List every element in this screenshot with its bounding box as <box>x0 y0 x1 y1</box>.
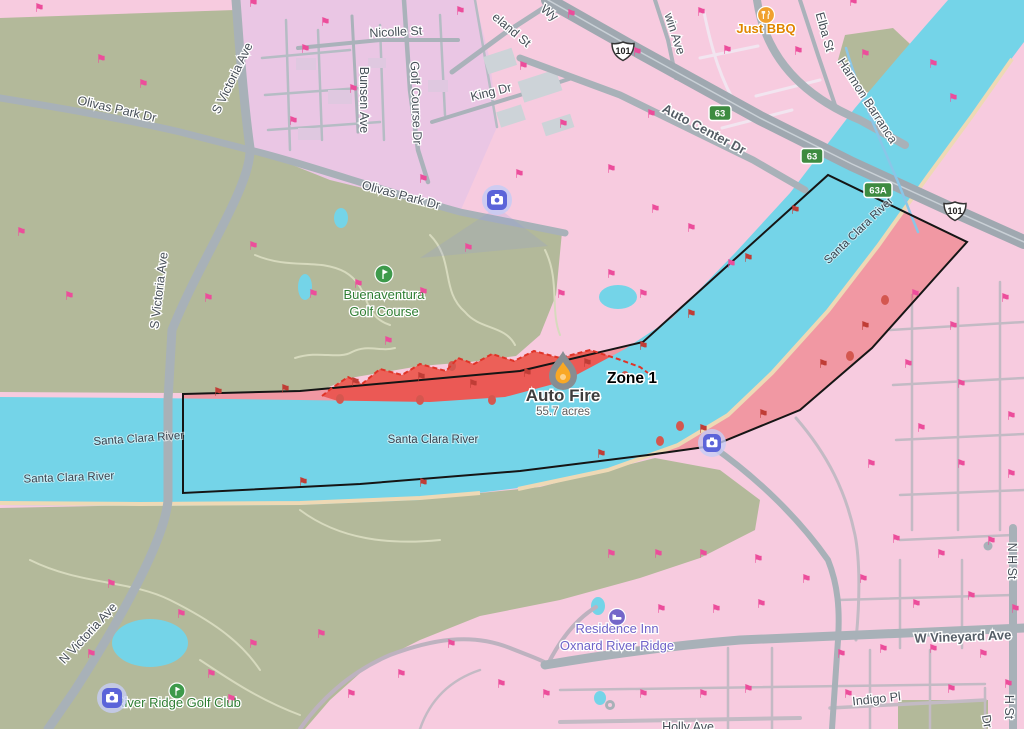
road-label-h-st: H St <box>1002 695 1016 720</box>
road-label-holly-ave: Holly Ave <box>662 720 714 729</box>
golf-course-icon[interactable] <box>375 265 393 283</box>
road-label-n-h-st: N H St <box>1005 543 1019 580</box>
water-label-santa-clara-river-c: Santa Clara River <box>388 434 479 446</box>
sr63-shield-icon: 63 <box>709 106 731 121</box>
pond <box>298 274 312 300</box>
cul-de-sac <box>984 542 993 551</box>
poi-label-buenaventura-2: Golf Course <box>349 304 418 319</box>
road-label-bunsen-ave: Bunsen Ave <box>357 67 371 134</box>
fire-zone-label: Zone 1 <box>607 370 657 387</box>
poi-label-residence-inn-2: Oxnard River Ridge <box>560 638 674 653</box>
poi-label-buenaventura: Buenaventura <box>344 287 426 302</box>
road-label-dr: Dr <box>979 714 995 729</box>
pond <box>594 691 606 705</box>
hotel-icon[interactable] <box>609 609 626 626</box>
fire-acreage-label: 55.7 acres <box>536 406 590 418</box>
road-label-golf-course-dr: Golf Course Dr <box>408 61 425 145</box>
map-canvas[interactable]: Wy eland St Nicolle St win Ave King Dr B… <box>0 0 1024 729</box>
road-label-nicolle-st: Nicolle St <box>369 24 423 41</box>
traffic-camera-icon[interactable] <box>698 429 726 457</box>
sr63-shield-icon: 63 <box>801 149 823 164</box>
pond <box>599 285 637 309</box>
pond <box>334 208 348 228</box>
us101-shield-text: 101 <box>947 206 962 216</box>
us101-shield-text: 101 <box>615 46 630 56</box>
pond <box>112 619 188 667</box>
sr63-shield-text: 63 <box>715 109 726 120</box>
restaurant-icon[interactable] <box>758 7 775 24</box>
traffic-camera-icon[interactable] <box>97 683 127 713</box>
cul-de-sac-center <box>608 703 612 707</box>
traffic-camera-icon[interactable] <box>482 185 512 215</box>
pond <box>591 597 605 615</box>
sr63a-shield-icon: 63A <box>864 183 892 198</box>
map-svg: Wy eland St Nicolle St win Ave King Dr B… <box>0 0 1024 729</box>
golf-course-icon[interactable] <box>169 683 185 699</box>
sr63a-shield-text: 63A <box>869 186 887 197</box>
sr63-shield-text: 63 <box>807 152 818 163</box>
